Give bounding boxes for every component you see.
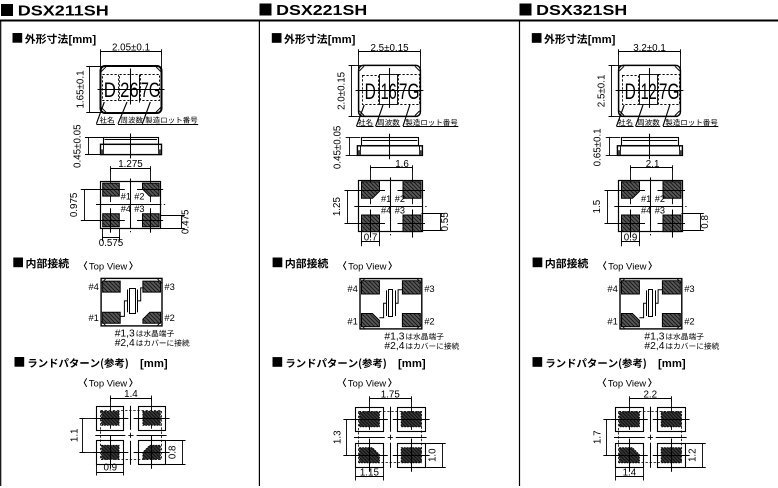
svg-text:2.0±0.15: 2.0±0.15 — [336, 71, 347, 110]
svg-text:Top View: Top View — [348, 379, 387, 390]
svg-text:7G: 7G — [141, 78, 161, 102]
svg-text:DSX321SH: DSX321SH — [536, 2, 627, 19]
svg-text:#1: #1 — [641, 194, 651, 204]
svg-text:#4: #4 — [88, 281, 98, 292]
svg-text:#2: #2 — [424, 316, 434, 327]
svg-text:D: D — [625, 79, 636, 104]
svg-text:#2,4: #2,4 — [115, 338, 135, 349]
svg-text:[mm]: [mm] — [588, 34, 616, 46]
svg-text:0.8: 0.8 — [700, 215, 711, 229]
svg-text:#3: #3 — [134, 204, 144, 214]
svg-text:0.55: 0.55 — [440, 212, 451, 232]
svg-text:#3: #3 — [684, 283, 694, 294]
svg-text:#2: #2 — [684, 316, 694, 327]
svg-text:D: D — [365, 79, 376, 104]
svg-text:1.2: 1.2 — [688, 448, 699, 462]
svg-text:2.5±0.15: 2.5±0.15 — [370, 43, 409, 54]
svg-text:#2: #2 — [164, 312, 174, 323]
svg-text:#1: #1 — [381, 194, 391, 204]
svg-text:1.0: 1.0 — [428, 448, 439, 462]
svg-text:7G: 7G — [659, 79, 680, 104]
svg-text:1.1: 1.1 — [70, 428, 81, 442]
svg-text:#1: #1 — [347, 316, 357, 327]
svg-text:#4: #4 — [347, 283, 357, 294]
svg-text:0.975: 0.975 — [69, 192, 80, 217]
svg-text:1.7: 1.7 — [593, 430, 604, 444]
svg-text:Top View: Top View — [348, 262, 387, 273]
svg-text:DSX221SH: DSX221SH — [276, 2, 367, 19]
svg-text:D: D — [104, 78, 116, 102]
svg-text:1.65±0.1: 1.65±0.1 — [75, 70, 86, 108]
svg-text:#3: #3 — [424, 283, 434, 294]
svg-text:0.9: 0.9 — [103, 463, 117, 474]
svg-text:#1: #1 — [88, 312, 98, 323]
svg-text:0.45±0.05: 0.45±0.05 — [333, 125, 344, 169]
svg-text:#1: #1 — [121, 192, 131, 202]
svg-text:Top View: Top View — [89, 262, 128, 273]
svg-text:1.6: 1.6 — [395, 159, 409, 170]
svg-text:Top View: Top View — [89, 379, 128, 390]
svg-text:#2: #2 — [134, 192, 144, 202]
svg-text:[mm]: [mm] — [398, 358, 426, 370]
svg-text:[mm]: [mm] — [69, 34, 97, 46]
svg-text:3.2±0.1: 3.2±0.1 — [633, 43, 666, 54]
svg-text:#1: #1 — [607, 316, 617, 327]
svg-text:2.1: 2.1 — [646, 159, 660, 170]
svg-text:#4: #4 — [121, 204, 131, 214]
svg-text:#3: #3 — [164, 281, 174, 292]
svg-text:0.8: 0.8 — [168, 445, 179, 459]
svg-text:DSX211SH: DSX211SH — [18, 2, 109, 19]
svg-text:26: 26 — [120, 78, 139, 102]
svg-text:[mm]: [mm] — [140, 358, 168, 370]
svg-text:16: 16 — [381, 79, 397, 104]
svg-text:Top View: Top View — [608, 262, 647, 273]
svg-text:1.25: 1.25 — [332, 197, 343, 217]
svg-text:#2: #2 — [395, 194, 405, 204]
svg-text:#2,4: #2,4 — [384, 341, 404, 352]
svg-text:#2: #2 — [655, 194, 665, 204]
svg-text:Top View: Top View — [608, 379, 647, 390]
svg-text:0.45±0.05: 0.45±0.05 — [73, 124, 84, 168]
svg-text:[mm]: [mm] — [328, 34, 356, 46]
svg-text:#2,4: #2,4 — [644, 341, 664, 352]
svg-text:12: 12 — [641, 79, 657, 104]
svg-text:0.65±0.1: 0.65±0.1 — [593, 128, 604, 166]
svg-text:7G: 7G — [399, 79, 420, 104]
svg-text:#4: #4 — [607, 283, 617, 294]
svg-text:1.5: 1.5 — [592, 199, 603, 213]
svg-text:2.5±0.1: 2.5±0.1 — [596, 75, 607, 108]
svg-text:[mm]: [mm] — [658, 358, 686, 370]
svg-text:1.3: 1.3 — [333, 430, 344, 444]
